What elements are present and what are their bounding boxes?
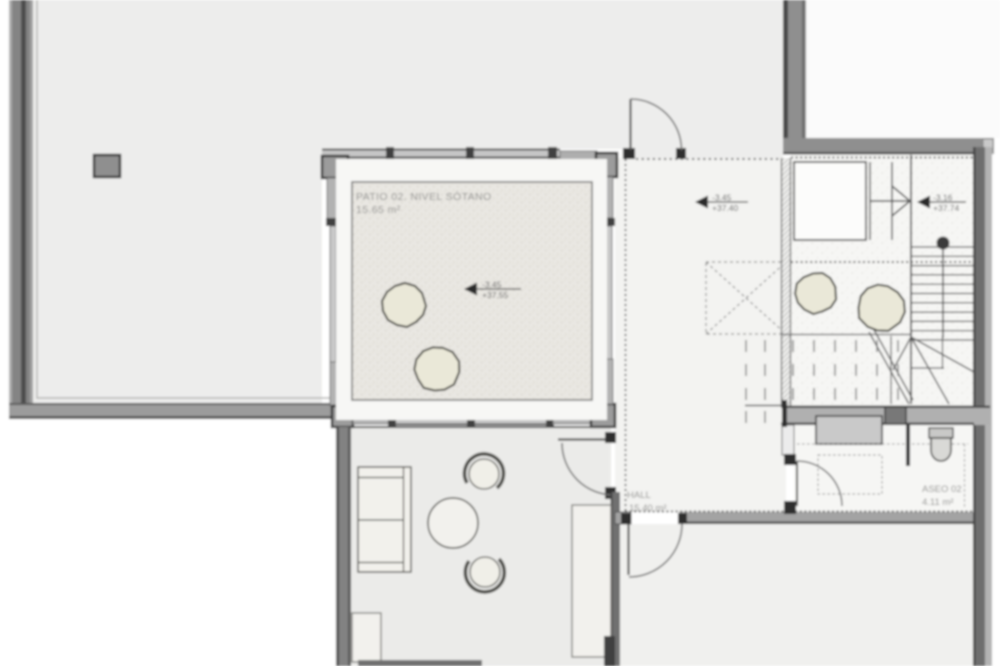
svg-text:-3.45: -3.45 xyxy=(712,193,732,203)
svg-text:+37.40: +37.40 xyxy=(712,203,739,213)
svg-text:4.11 m²: 4.11 m² xyxy=(922,497,954,508)
svg-text:HALL: HALL xyxy=(627,490,651,501)
svg-text:-3.45: -3.45 xyxy=(482,280,502,290)
svg-text:PATIO 02. NIVEL SÓTANO: PATIO 02. NIVEL SÓTANO xyxy=(356,190,492,203)
svg-text:+37.55: +37.55 xyxy=(482,290,509,300)
svg-text:15.65 m²: 15.65 m² xyxy=(356,204,401,216)
svg-text:ASEO 02: ASEO 02 xyxy=(922,484,962,495)
svg-text:+37.74: +37.74 xyxy=(933,203,960,213)
svg-text:-3.16: -3.16 xyxy=(933,193,953,203)
